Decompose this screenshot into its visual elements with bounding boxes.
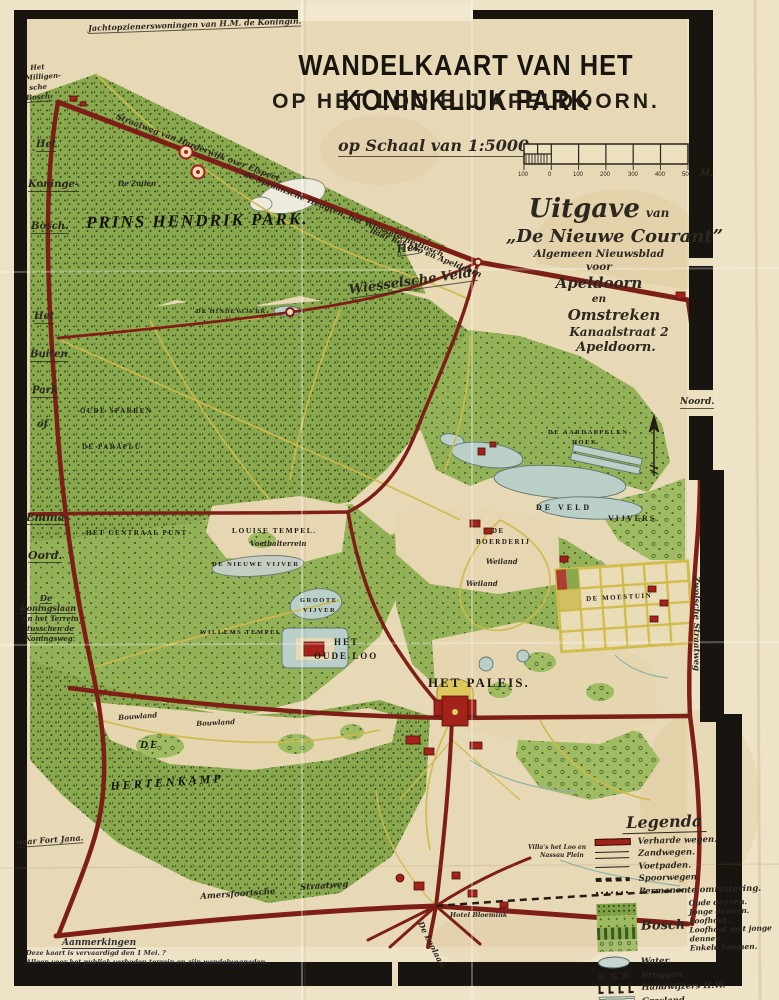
remarks-line: Deze kaart is vervaardigd den 1 Mei. ? [26,949,356,958]
label-villas: Nassau Plein [540,853,584,859]
label-hertenkamp: DE [140,740,159,751]
grassland-swatch [599,995,635,1000]
remarks-title: Aanmerkingen [62,938,136,949]
label-koningsbosch: Bosch. [31,222,69,234]
scale-tick: 400 [655,172,665,178]
label-voetbalterrein: Voetbalterrein [250,540,307,547]
label-veld-vijvers: DE VELD [536,504,592,512]
legend-bosch-sublist: Oude dennen. Jonge dennen. Loofhout. Loo… [689,896,778,952]
publisher-word-uitgave: Uitgavevan [506,194,692,224]
publisher-sub: Omstreken [506,306,692,324]
label-aardappelenhoek: DE AARDAPPELEN [548,430,628,437]
label-het-oude-loo: HET [334,638,359,647]
paved-road-swatch [595,838,631,846]
bridge-swatch [598,972,632,980]
label-veld-vijvers: VIJVERS. [608,515,660,523]
publisher-block: Uitgavevan „De Nieuwe Courant” Algemeen … [506,194,692,355]
legend-row-bosch: Bosch Oude dennen. Jonge dennen. Loofhou… [596,896,779,955]
label-het-paleis: HET PALEIS. [428,676,530,689]
forest-swatch [596,902,637,951]
scale-tick: 300 [628,172,638,178]
label-koningslaan-note: Koningslaan [20,604,76,614]
scale-tick: 100 [518,172,528,178]
publisher-sub: Kanaalstraat 2 [506,325,692,339]
label-buitenpark: Park [32,386,58,398]
label-weiland: Weiland [466,580,498,587]
label-groote-vijver: VIJVER [303,608,336,615]
legend-row-omrastering: Permanente omrastering. [596,883,779,898]
label-oude-sparren: OUDE SPARREN [80,408,153,415]
label-emma-oord: Oord. [28,550,62,563]
label-aardappelenhoek: HOEK [572,440,598,447]
label-centraal-punt: HET CENTRAAL PUNT [86,530,188,537]
scale-tick: 100 [573,172,583,178]
legend-bosch-word: Bosch [641,918,686,934]
label-koningslaan-note: en het Terrein [23,615,79,622]
label-hindevijver: DE HINDEVIJVER [196,309,266,316]
label-koningslaan-note: Koningsweg. [25,635,75,642]
map-subtitle: OP HET LOO BIJ APELDOORN. [226,90,706,114]
publisher-sub: Apeldoorn. [506,340,692,355]
label-villas: Villa's het Loo en [528,845,586,851]
label-emma-oord: Emma- [26,512,69,525]
remarks-note: Aanmerkingen Deze kaart is vervaardigd d… [26,930,356,967]
label-nieuwe-vijver: DE NIEUWE VIJVER [212,562,299,569]
label-groote-vijver: GROOTE [300,598,338,605]
label-de-paraplu: DE PARAPLU [82,444,141,451]
scale-tick: 200 [600,172,610,178]
label-bouwland: Bouwland [196,718,235,727]
publisher-word-van: van [646,206,669,220]
signpost-swatch [598,983,636,994]
sand-road-swatch [595,851,629,859]
wandelkaart-het-loo-map: WANDELKAART VAN HET KONINKLIJK PARK OP H… [0,0,779,1000]
legend: Legenda Verharde wegen. Zandwegen. Voetp… [594,809,779,1000]
railway-swatch [596,877,630,881]
label-boerderij: BOERDERIJ [476,539,530,546]
label-prins-hendrik-park: PRINS HENDRIK PARK. [86,210,309,231]
label-buitenpark: Het [34,312,54,324]
label-de-zuilen: De Zuilen [118,180,156,187]
remarks-line: Alleen voor het publiek verboden terrein… [26,958,356,967]
label-milligensche-bosch: sche [29,83,47,91]
label-koningsbosch: Het [36,140,56,152]
label-buitenpark: Buiten [30,350,68,362]
scale-text: op Schaal van 1:5000 _ [338,136,543,157]
scale-tick: 0 [548,172,551,178]
publisher-sub: Apeldoorn [506,274,692,292]
label-louise-tempel: LOUISE TEMPEL. [232,527,317,535]
scale-tick: 500 [682,172,692,178]
water-swatch [598,956,630,969]
label-willems-tempel: WILLEMS TEMPEL [200,630,282,637]
label-koningsbosch: Koninge- [28,180,79,192]
label-zwolsche-straatweg: Zwolsche Straatweg [692,576,701,671]
publisher-name: „De Nieuwe Courant” [506,226,692,247]
label-noord: Noord. [680,398,714,409]
publisher-sub: en [506,293,692,305]
label-milligensche-bosch: Het [30,63,45,71]
label-het-oude-loo: OUDE LOO [314,652,378,661]
label-hotel-bloemink: Hotel Bloemink [450,912,507,919]
label-weiland: Weiland [486,558,518,565]
label-koningslaan-note: tusschen de [27,625,74,634]
publisher-sub: Algemeen Nieuwsblad [506,248,692,260]
legend-title: Legenda [622,811,707,834]
label-milligensche-bosch: Milligen- [25,72,61,81]
footpath-swatch [595,866,629,868]
publisher-sub: voor [506,261,692,273]
scale-unit: M. [700,170,713,179]
label-bouwland: Bouwland [118,711,157,721]
moestuin-grid [556,561,693,652]
fence-swatch [596,891,630,894]
label-buitenpark: of [37,420,48,430]
label-boerderij: DE [492,528,505,535]
label-milligensche-bosch: Bosch. [26,92,53,103]
